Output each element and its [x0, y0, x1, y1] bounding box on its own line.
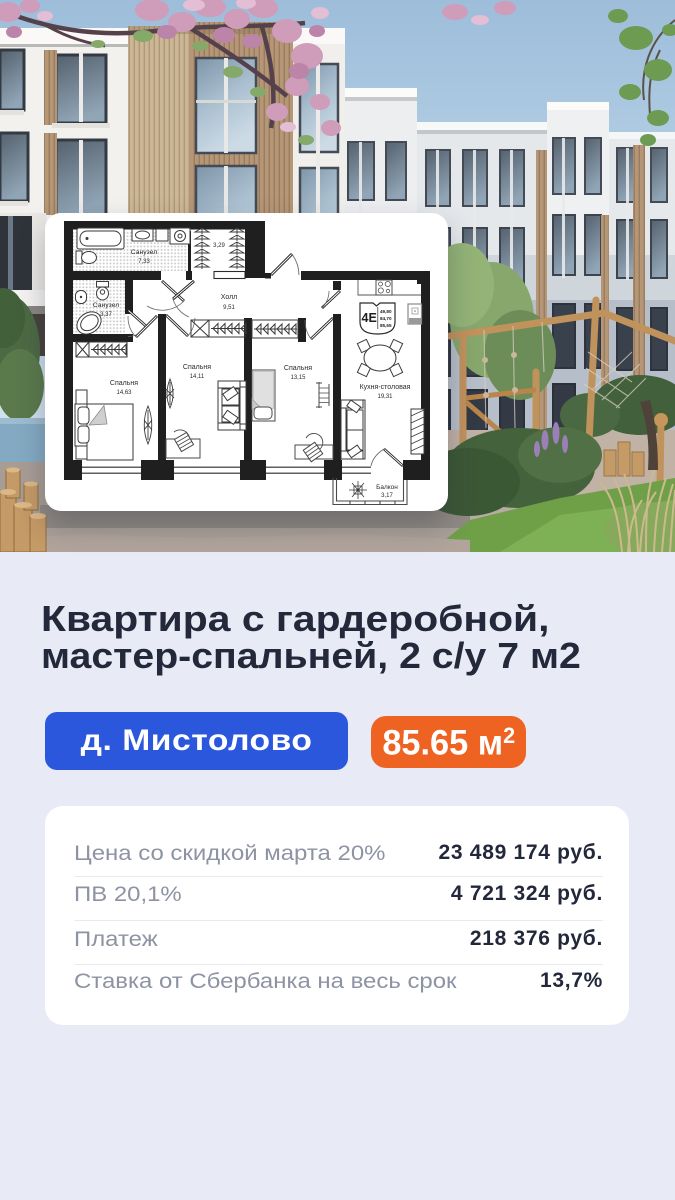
- svg-text:3,29: 3,29: [213, 243, 225, 249]
- svg-text:Санузел: Санузел: [131, 249, 158, 256]
- svg-text:7,33: 7,33: [138, 259, 150, 265]
- svg-text:Балкон: Балкон: [376, 484, 398, 491]
- svg-text:3,37: 3,37: [100, 312, 112, 318]
- svg-text:49,80: 49,80: [380, 309, 392, 314]
- svg-text:13,15: 13,15: [290, 375, 306, 381]
- svg-text:Спальня: Спальня: [183, 364, 211, 371]
- svg-text:14,11: 14,11: [190, 374, 205, 380]
- svg-text:Кухня-столовая: Кухня-столовая: [360, 384, 411, 391]
- svg-text:4Е: 4Е: [362, 311, 377, 325]
- svg-text:19,31: 19,31: [377, 394, 393, 400]
- svg-text:3,17: 3,17: [381, 493, 393, 499]
- svg-text:Спальня: Спальня: [110, 380, 138, 387]
- svg-text:Холл: Холл: [221, 294, 238, 301]
- svg-text:Спальня: Спальня: [284, 365, 312, 372]
- svg-text:14,63: 14,63: [116, 390, 132, 396]
- svg-text:85,65: 85,65: [380, 323, 392, 328]
- svg-text:Санузел: Санузел: [93, 302, 120, 309]
- svg-text:9,51: 9,51: [223, 305, 235, 311]
- svg-text:84,70: 84,70: [380, 316, 392, 321]
